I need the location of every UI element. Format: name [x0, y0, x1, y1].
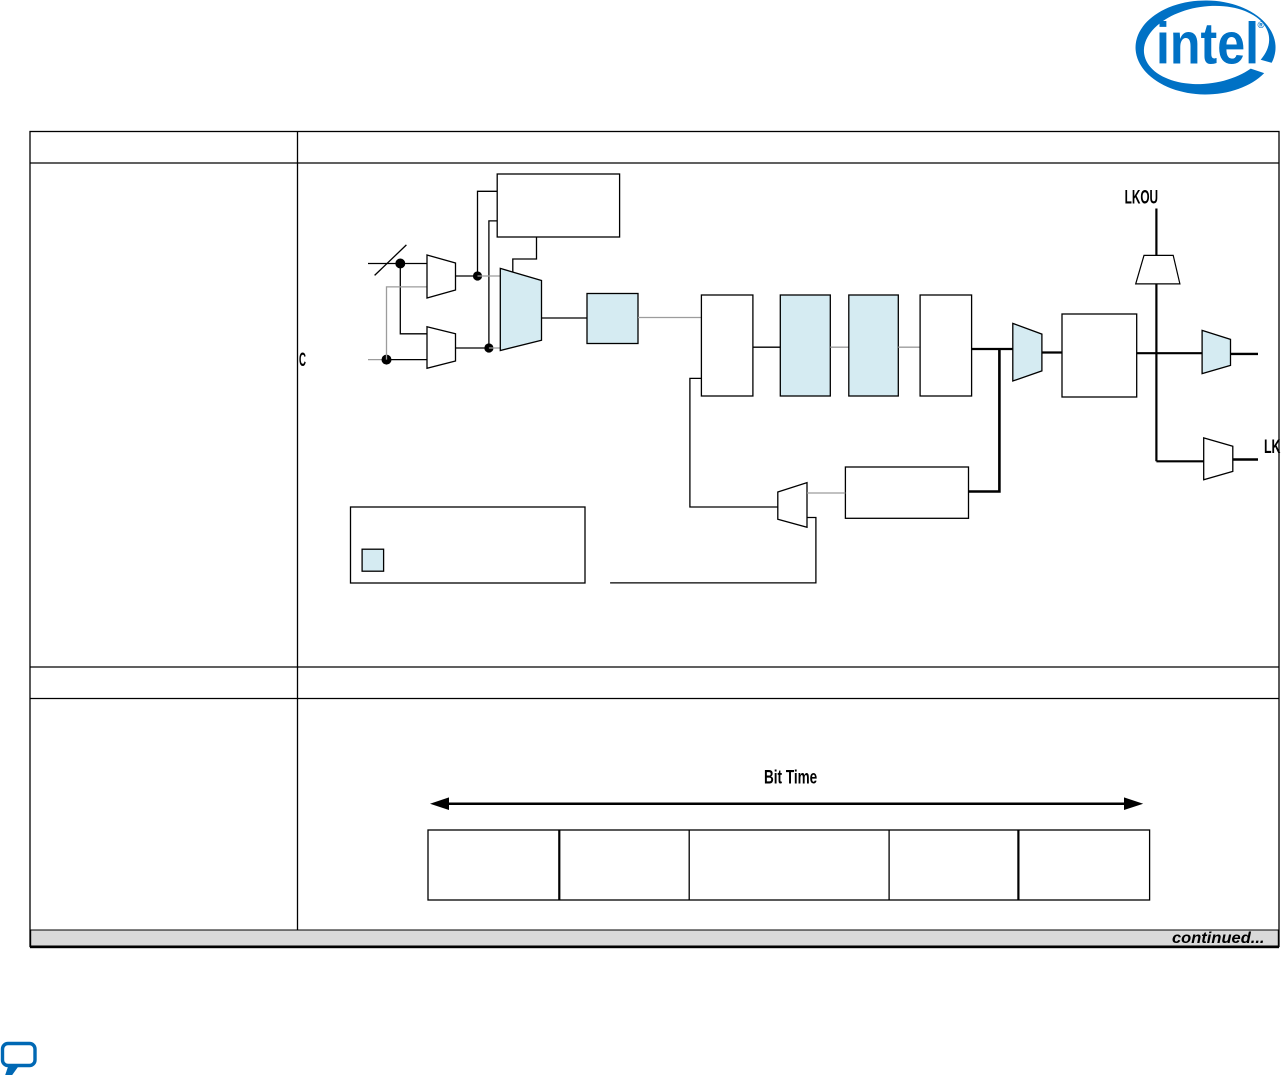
svg-text:LK: LK	[1264, 437, 1281, 458]
svg-text:C: C	[299, 349, 306, 371]
svg-text:intel: intel	[1156, 11, 1259, 76]
svg-text:continued...: continued...	[1172, 930, 1265, 947]
svg-text:Bit Time: Bit Time	[764, 767, 817, 789]
svg-text:LKOU: LKOU	[1125, 188, 1159, 209]
svg-text:®: ®	[1258, 20, 1265, 31]
